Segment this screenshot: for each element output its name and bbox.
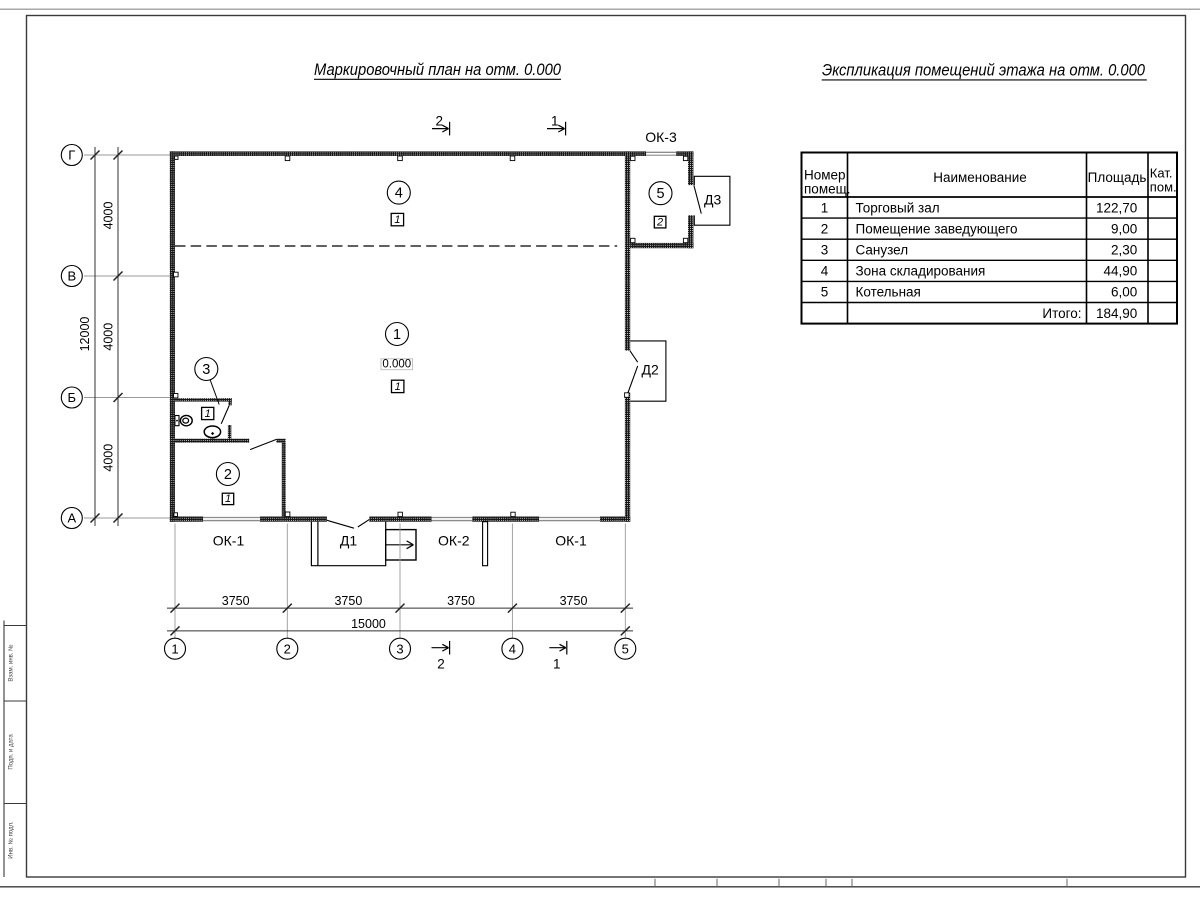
svg-text:Взам. инв. №: Взам. инв. №: [8, 644, 15, 681]
svg-text:2: 2: [436, 114, 444, 129]
svg-text:Кат.: Кат.: [1150, 166, 1173, 181]
svg-text:184,90: 184,90: [1096, 306, 1137, 321]
svg-text:4: 4: [509, 641, 516, 656]
svg-text:Д2: Д2: [642, 362, 659, 378]
svg-text:Инв. № подл.: Инв. № подл.: [8, 821, 15, 859]
svg-text:122,70: 122,70: [1096, 200, 1137, 215]
svg-text:ОК-3: ОК-3: [645, 129, 677, 145]
svg-text:5: 5: [622, 641, 629, 656]
svg-text:2: 2: [224, 467, 232, 483]
svg-text:2: 2: [437, 656, 445, 671]
svg-text:5: 5: [656, 186, 664, 202]
svg-text:3: 3: [202, 362, 210, 378]
svg-text:2,30: 2,30: [1111, 243, 1137, 258]
svg-text:4000: 4000: [102, 202, 116, 230]
svg-text:5: 5: [821, 285, 829, 300]
svg-text:Маркировочный план на отм. 0.0: Маркировочный план на отм. 0.000: [314, 60, 561, 79]
svg-text:Зона складирования: Зона складирования: [856, 264, 986, 279]
svg-text:3: 3: [821, 243, 829, 258]
svg-text:12000: 12000: [78, 317, 92, 352]
svg-text:44,90: 44,90: [1104, 264, 1138, 279]
svg-text:2: 2: [656, 216, 663, 228]
svg-text:Номер: Номер: [804, 168, 846, 183]
svg-text:1: 1: [395, 381, 401, 393]
svg-text:0.000: 0.000: [382, 359, 411, 371]
svg-text:Итого:: Итого:: [1042, 306, 1081, 321]
svg-text:Б: Б: [68, 390, 77, 405]
svg-text:Подп. и дата: Подп. и дата: [9, 734, 15, 770]
svg-text:Торговый зал: Торговый зал: [856, 200, 940, 215]
svg-text:1: 1: [551, 114, 559, 129]
svg-text:Площадь: Площадь: [1088, 170, 1147, 185]
svg-text:6,00: 6,00: [1111, 285, 1137, 300]
svg-text:15000: 15000: [351, 617, 386, 631]
svg-text:9,00: 9,00: [1111, 221, 1137, 236]
svg-text:пом.: пом.: [1150, 180, 1177, 195]
svg-text:4: 4: [395, 186, 403, 202]
svg-text:1: 1: [553, 656, 561, 671]
svg-text:1: 1: [821, 200, 829, 215]
svg-text:1: 1: [225, 493, 231, 505]
svg-text:1: 1: [205, 408, 211, 420]
svg-text:1: 1: [394, 214, 400, 226]
svg-text:2: 2: [821, 221, 829, 236]
svg-text:1: 1: [171, 641, 178, 656]
svg-text:3750: 3750: [334, 594, 362, 608]
svg-text:помещ.: помещ.: [804, 182, 850, 197]
svg-text:ОК-2: ОК-2: [438, 533, 470, 549]
svg-text:3: 3: [396, 641, 403, 656]
svg-text:4: 4: [821, 264, 829, 279]
svg-text:4000: 4000: [102, 323, 116, 351]
svg-text:А: А: [67, 511, 76, 526]
svg-text:В: В: [67, 269, 76, 284]
svg-text:ОК-1: ОК-1: [213, 533, 245, 549]
svg-text:3750: 3750: [222, 594, 250, 608]
svg-text:4000: 4000: [102, 444, 116, 472]
svg-text:3750: 3750: [560, 594, 588, 608]
svg-text:Котельная: Котельная: [856, 285, 921, 300]
svg-text:Экспликация помещений этажа на: Экспликация помещений этажа на отм. 0.00…: [822, 61, 1145, 80]
svg-text:Д1: Д1: [340, 533, 357, 549]
svg-text:Санузел: Санузел: [856, 243, 909, 258]
svg-text:2: 2: [284, 641, 291, 656]
svg-text:Д3: Д3: [704, 191, 721, 207]
svg-text:3750: 3750: [447, 594, 475, 608]
svg-text:1: 1: [393, 327, 401, 343]
svg-text:Помещение заведующего: Помещение заведующего: [856, 221, 1018, 236]
svg-text:ОК-1: ОК-1: [555, 533, 587, 549]
svg-text:Г: Г: [68, 148, 75, 163]
svg-text:Наименование: Наименование: [933, 170, 1027, 185]
